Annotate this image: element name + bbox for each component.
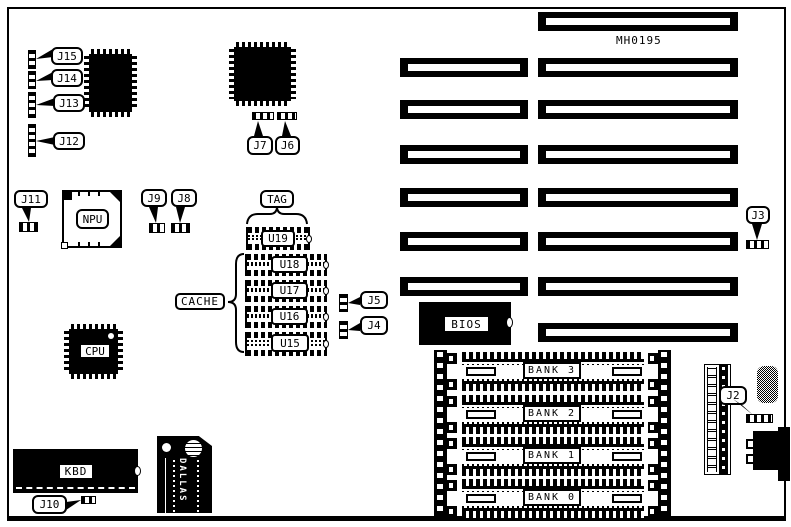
- dallas-logo-icon: [185, 440, 202, 457]
- chip-notch: [306, 235, 312, 243]
- chip-body: [89, 54, 132, 112]
- connector-pins: [707, 367, 717, 472]
- jumper-j7: [252, 112, 274, 120]
- simm-rail-left: [434, 350, 447, 517]
- socket-corner: [110, 236, 120, 246]
- qfp-chip-topmiddle: [229, 42, 296, 106]
- jumper-j11: [19, 222, 38, 232]
- pin-row: [291, 49, 296, 99]
- chip-marking: [173, 460, 175, 518]
- simm-clip: [648, 422, 658, 433]
- u19-label: U19: [261, 230, 295, 247]
- socket-ticks: [78, 242, 106, 246]
- label-j8: J8: [171, 189, 197, 207]
- u18-label: U18: [271, 256, 308, 273]
- pin-row: [91, 49, 130, 54]
- simm-clip: [447, 506, 457, 517]
- jumper-j5: [339, 294, 348, 312]
- label-j13: J13: [53, 94, 85, 112]
- simm-socket-row: [462, 463, 644, 476]
- label-j10: J10: [32, 495, 67, 514]
- bank-bar: [466, 367, 496, 376]
- expansion-slot: [538, 188, 738, 207]
- label-j7: J7: [247, 136, 273, 155]
- expansion-slot: [400, 277, 528, 296]
- jumper-j12: [28, 124, 36, 157]
- socket-corner: [63, 191, 72, 200]
- chip-body: [234, 47, 291, 101]
- expansion-slot: [538, 58, 738, 77]
- u16-label: U16: [271, 308, 308, 325]
- chip-notch: [323, 340, 329, 348]
- bank3-label: BANK 3: [523, 362, 581, 379]
- simm-clip: [447, 422, 457, 433]
- expansion-slot: [538, 100, 738, 119]
- simm-clip: [648, 506, 658, 517]
- expansion-slot: [400, 58, 528, 77]
- expansion-slot: [400, 100, 528, 119]
- simm-clip: [648, 396, 658, 407]
- label-j15: J15: [51, 47, 83, 65]
- bank2-label: BANK 2: [523, 405, 581, 422]
- expansion-slot: [400, 232, 528, 251]
- u17-label: U17: [271, 282, 308, 299]
- keyboard-din-connector: [778, 427, 790, 481]
- pin-row: [229, 49, 234, 99]
- bank-bar: [466, 452, 496, 461]
- simm-clip: [447, 464, 457, 475]
- chip-marking: [165, 458, 166, 522]
- bank-bar: [612, 494, 642, 503]
- jumper-j15: [28, 50, 36, 69]
- label-j9: J9: [141, 189, 167, 207]
- simm-clip: [648, 464, 658, 475]
- simm-socket-row: [462, 505, 644, 518]
- simm-clip: [648, 379, 658, 390]
- npu-label: NPU: [76, 209, 109, 229]
- expansion-slot: [538, 232, 738, 251]
- expansion-slot: [400, 188, 528, 207]
- socket-key: [61, 242, 68, 249]
- kbd-label: KBD: [58, 463, 94, 480]
- bios-label: BIOS: [443, 315, 490, 333]
- pin-row: [71, 374, 116, 379]
- jumper-j4: [339, 321, 348, 339]
- pin1-dot: [162, 443, 171, 452]
- connector-tab: [746, 439, 755, 449]
- connector-pins: [722, 367, 725, 472]
- kbd-pin-line: [16, 487, 135, 489]
- u15-label: U15: [271, 334, 309, 352]
- jumper-j8: [171, 223, 190, 233]
- simm-clip: [447, 396, 457, 407]
- pin-row: [64, 331, 69, 372]
- expansion-slot: [538, 145, 738, 164]
- label-j5: J5: [360, 291, 388, 309]
- simm-clip: [447, 438, 457, 449]
- jumper-j9: [149, 223, 165, 233]
- expansion-slot: [400, 145, 528, 164]
- chip-notch: [323, 261, 329, 269]
- chip-notch: [323, 287, 329, 295]
- bank1-label: BANK 1: [523, 447, 581, 464]
- power-connector: [704, 364, 731, 475]
- pin-row: [132, 56, 137, 110]
- bank-bar: [466, 494, 496, 503]
- label-j3: J3: [746, 206, 770, 224]
- jumper-j6: [277, 112, 297, 120]
- pin-row: [71, 324, 116, 329]
- jumper-j13: [28, 92, 36, 118]
- pin-row: [236, 42, 289, 47]
- bank-bar: [612, 410, 642, 419]
- simm-clip: [447, 379, 457, 390]
- oscillator: [757, 366, 778, 403]
- label-tag: TAG: [260, 190, 294, 208]
- chip-marking: [197, 460, 199, 518]
- pin1-dot: [108, 333, 114, 339]
- bank-bar: [466, 410, 496, 419]
- simm-clip: [648, 438, 658, 449]
- jumper-j2: [746, 414, 773, 423]
- pin-row: [118, 331, 123, 372]
- chip-notch: [506, 317, 513, 328]
- expansion-slot: [538, 323, 738, 342]
- chip-notch: [323, 313, 329, 321]
- jumper-j14: [28, 71, 36, 89]
- bank0-label: BANK 0: [523, 489, 581, 506]
- socket-ticks: [78, 192, 106, 196]
- simm-socket-row: [462, 378, 644, 391]
- simm-clip: [648, 353, 658, 364]
- bank-bar: [612, 452, 642, 461]
- simm-clip: [648, 480, 658, 491]
- simm-clip: [447, 480, 457, 491]
- part-number: MH0195: [616, 34, 662, 47]
- label-j11: J11: [14, 190, 48, 208]
- label-j14: J14: [51, 69, 83, 87]
- expansion-slot: [538, 277, 738, 296]
- bank-bar: [612, 367, 642, 376]
- qfp-chip-topleft: [84, 49, 137, 117]
- connector-tab: [746, 454, 755, 464]
- socket-corner: [110, 192, 120, 202]
- cpu-label: CPU: [79, 343, 111, 359]
- label-j2: J2: [719, 386, 747, 405]
- simm-rail-right: [658, 350, 671, 517]
- label-j4: J4: [360, 316, 388, 335]
- pin-row: [236, 101, 289, 106]
- jumper-j3: [746, 240, 769, 249]
- label-j6: J6: [275, 136, 300, 155]
- simm-clip: [447, 353, 457, 364]
- dallas-rtc-chip: DALLAS: [157, 436, 212, 513]
- label-cache: CACHE: [175, 293, 225, 310]
- expansion-slot: [538, 12, 738, 31]
- simm-socket-row: [462, 421, 644, 434]
- chip-notch: [134, 466, 141, 476]
- label-j12: J12: [53, 132, 85, 150]
- jumper-j10: [81, 496, 96, 504]
- pin-row: [91, 112, 130, 117]
